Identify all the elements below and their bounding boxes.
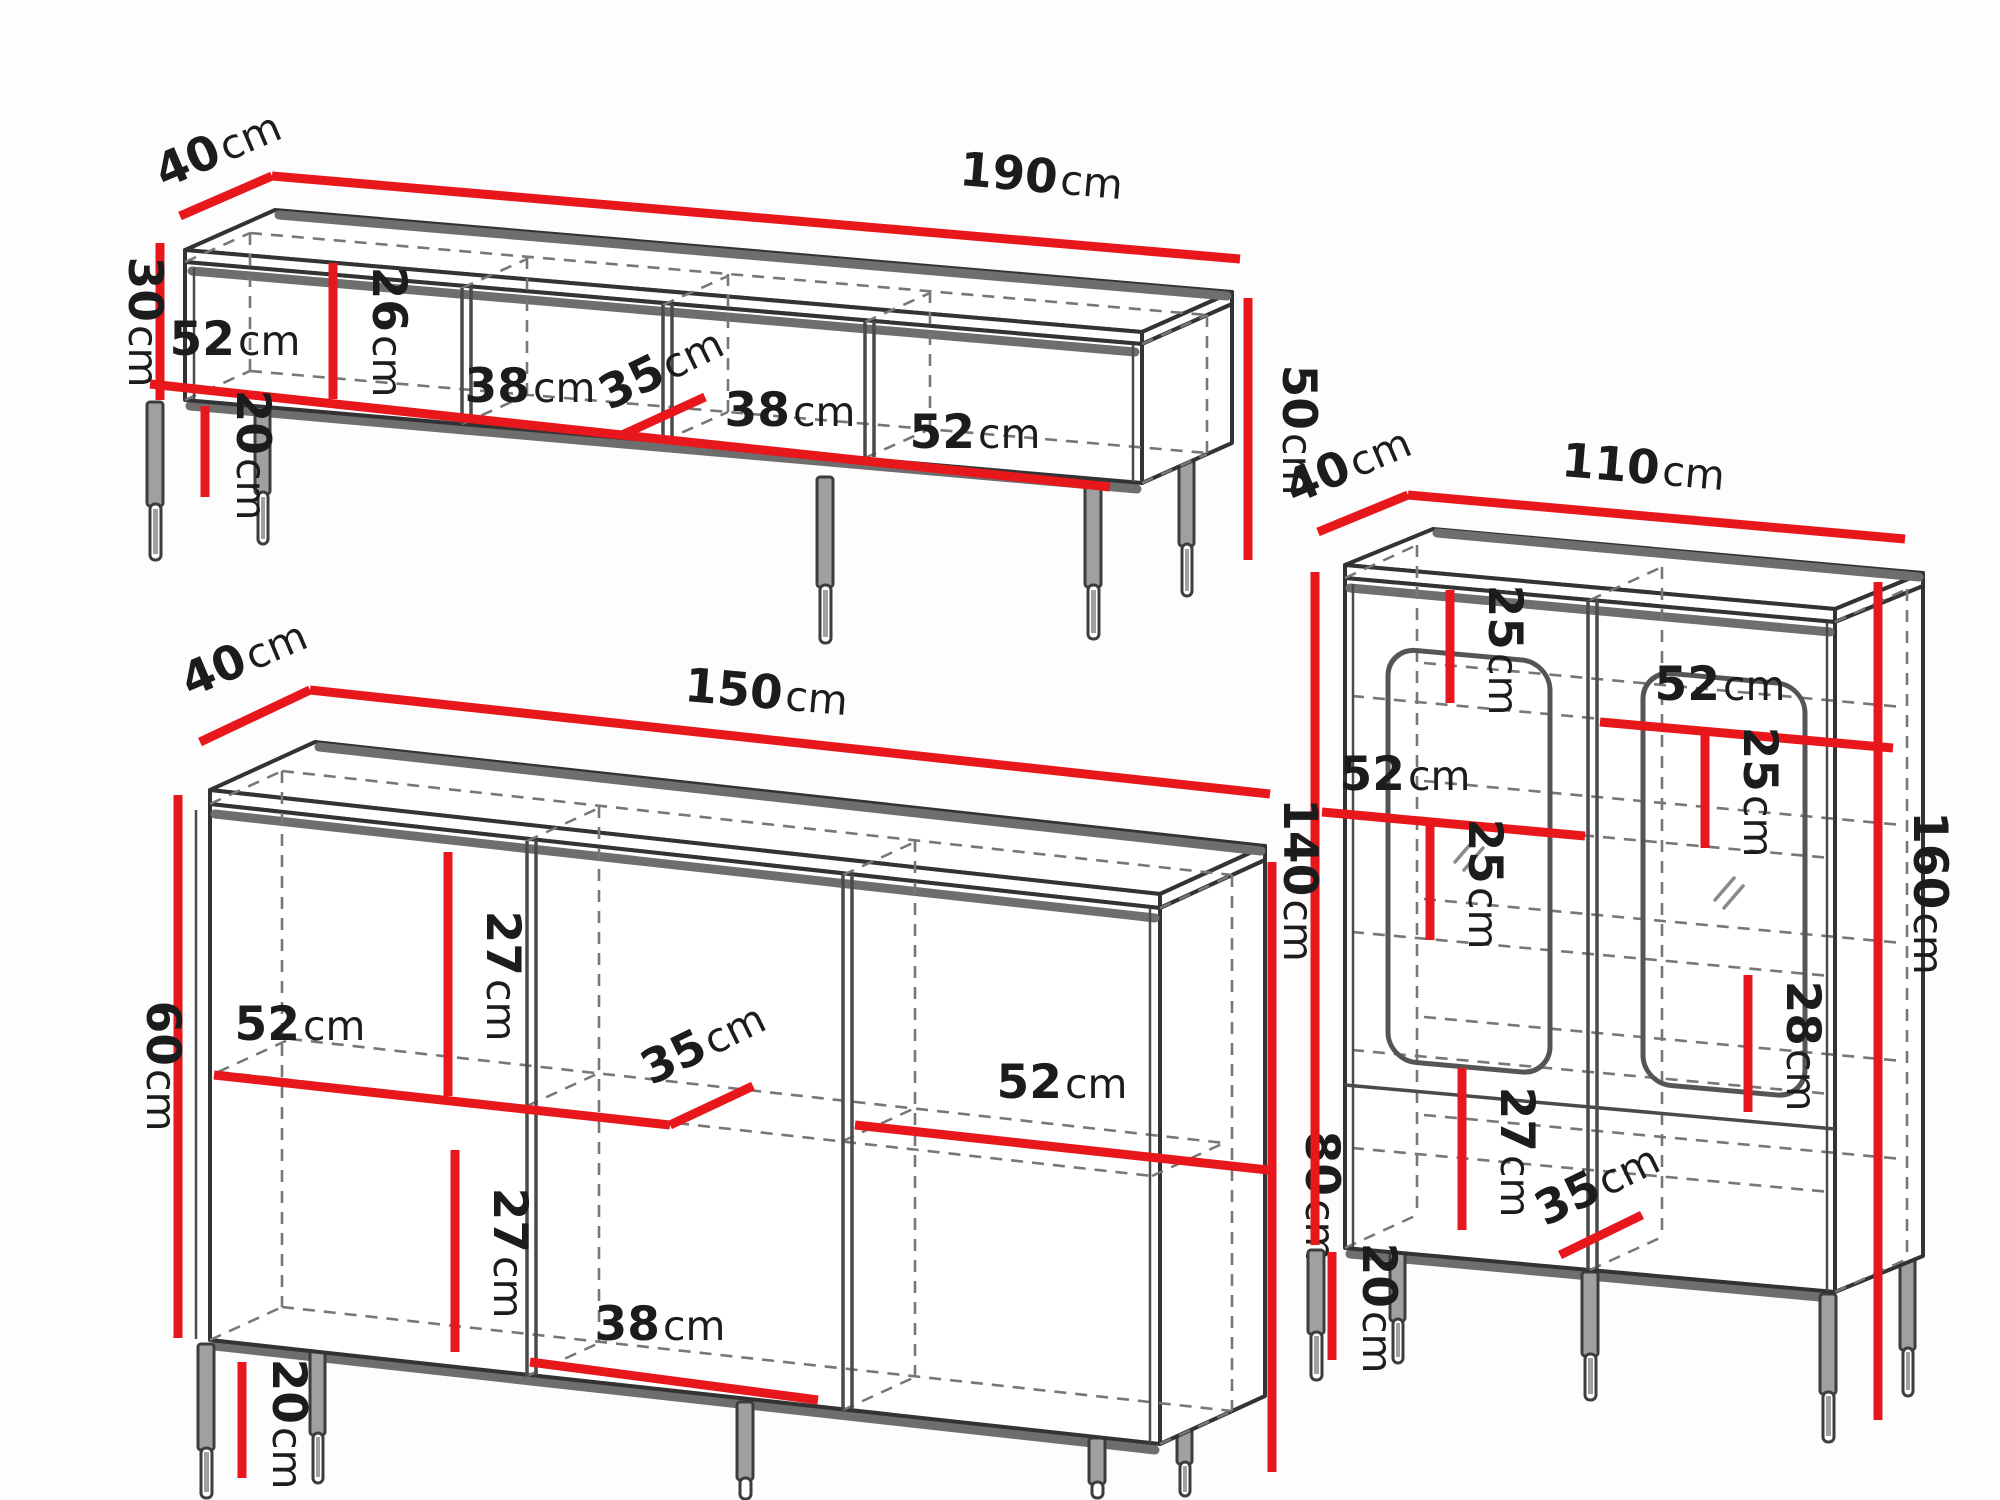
- furniture-dimensions-diagram: 40cm 190cm 30cm 50cm 26cm 52cm 38cm 35cm…: [0, 0, 2000, 1500]
- cabinet-body-height-label: 140cm: [1272, 798, 1327, 962]
- cabinet-total-height-label: 160cm: [1902, 811, 1957, 975]
